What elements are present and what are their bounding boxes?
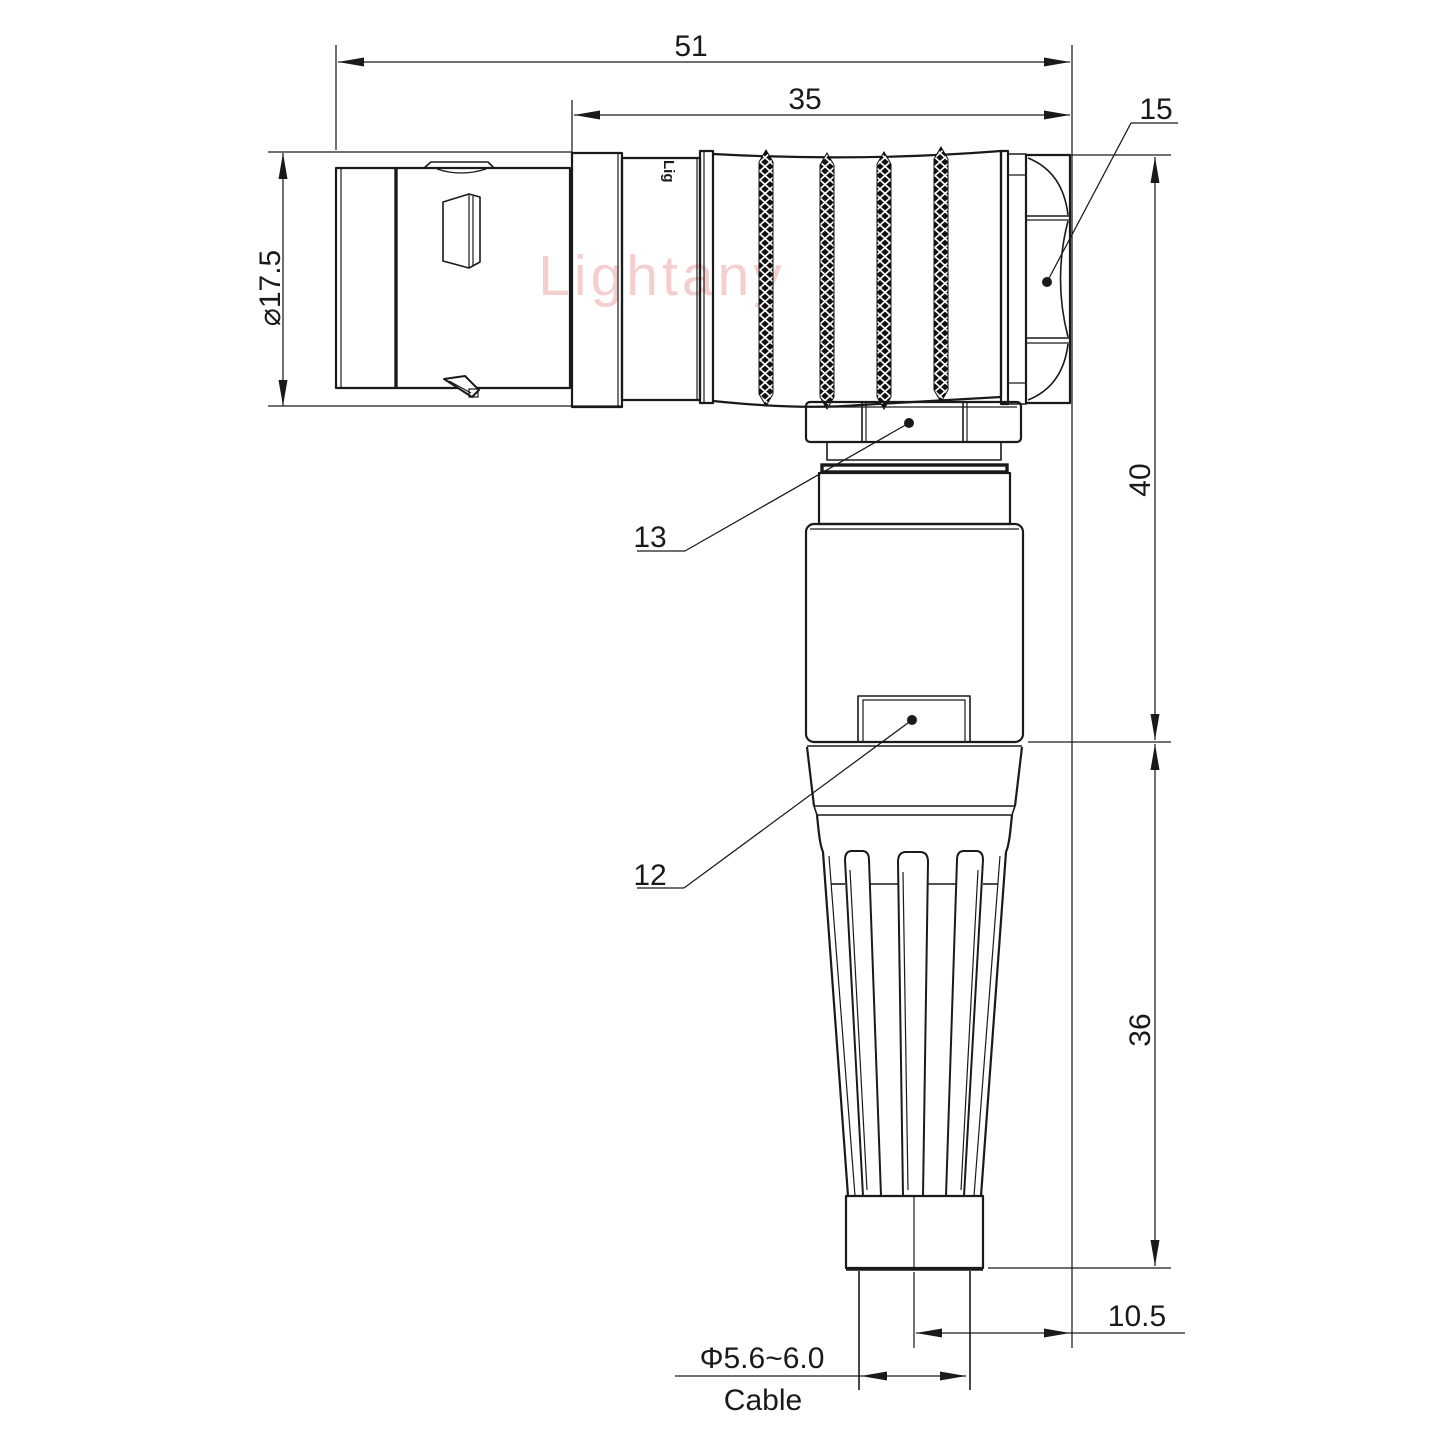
dim-36-text: 36 xyxy=(1124,1013,1157,1046)
dim-10-5-text: 10.5 xyxy=(1108,1300,1166,1333)
dim-35-text: 35 xyxy=(788,83,821,116)
dim-elbow-height: 40 xyxy=(1124,157,1160,740)
dim-boot-height: 36 xyxy=(1124,744,1160,1266)
dim-40-text: 40 xyxy=(1124,463,1157,496)
dim-17-5-text: ⌀17.5 xyxy=(254,250,287,326)
dim-cable-dia-text: Φ5.6~6.0 xyxy=(700,1342,825,1375)
oring-band xyxy=(822,465,1007,472)
knurl-band xyxy=(759,147,948,409)
key-window xyxy=(443,194,480,268)
neck xyxy=(1008,154,1026,404)
main-housing xyxy=(806,524,1023,746)
dim-front-diameter: ⌀17.5 xyxy=(254,153,288,406)
connector-technical-drawing: Lightany Lig xyxy=(0,0,1440,1440)
strain-relief-boot xyxy=(807,747,1022,1196)
watermark-text: Lightany xyxy=(538,244,786,308)
brand-logo-text: Lig xyxy=(660,160,677,183)
drawing-page: Lightany Lig xyxy=(0,0,1440,1440)
dim-overall-length: 51 xyxy=(338,30,1070,67)
upper-housing xyxy=(819,473,1010,524)
front-shell xyxy=(336,162,570,397)
dim-51-text: 51 xyxy=(674,30,707,63)
dim-cable-diameter: Φ5.6~6.0 Cable xyxy=(675,1342,966,1417)
dim-body-length: 35 xyxy=(574,83,1070,120)
label-15-text: 15 xyxy=(1139,93,1172,126)
bayonet-notch xyxy=(444,376,479,397)
cable-caption-text: Cable xyxy=(724,1384,802,1417)
flange-right xyxy=(1001,151,1008,404)
label-12-text: 12 xyxy=(633,859,666,892)
label-13-text: 13 xyxy=(633,521,666,554)
callout-clamp-nut: 13 xyxy=(633,418,914,554)
dim-cable-offset: 10.5 xyxy=(916,1300,1185,1338)
cable-ferrule xyxy=(846,1196,983,1269)
coupling-ring xyxy=(827,442,1001,460)
extension-lines xyxy=(268,45,1171,1348)
boot-rib xyxy=(845,851,983,1196)
